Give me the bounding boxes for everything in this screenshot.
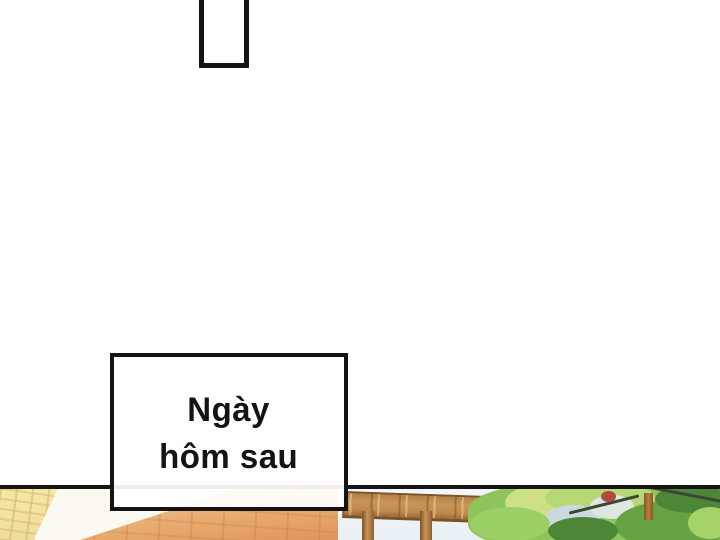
caption-line-1: Ngày: [188, 392, 271, 429]
red-leaf: [601, 491, 616, 502]
panel-fragment-top: [199, 0, 249, 68]
railing-post: [362, 511, 374, 540]
railing-post: [420, 511, 432, 540]
tree-trunk: [644, 493, 653, 520]
panel-bottom-illustration: [0, 485, 720, 540]
caption-line-2: hôm sau: [159, 439, 298, 476]
comic-page: Ngày hôm sau: [0, 0, 720, 540]
foliage-cluster: [548, 517, 618, 540]
caption-box: Ngày hôm sau: [110, 353, 348, 511]
foliage-cluster: [470, 507, 550, 540]
